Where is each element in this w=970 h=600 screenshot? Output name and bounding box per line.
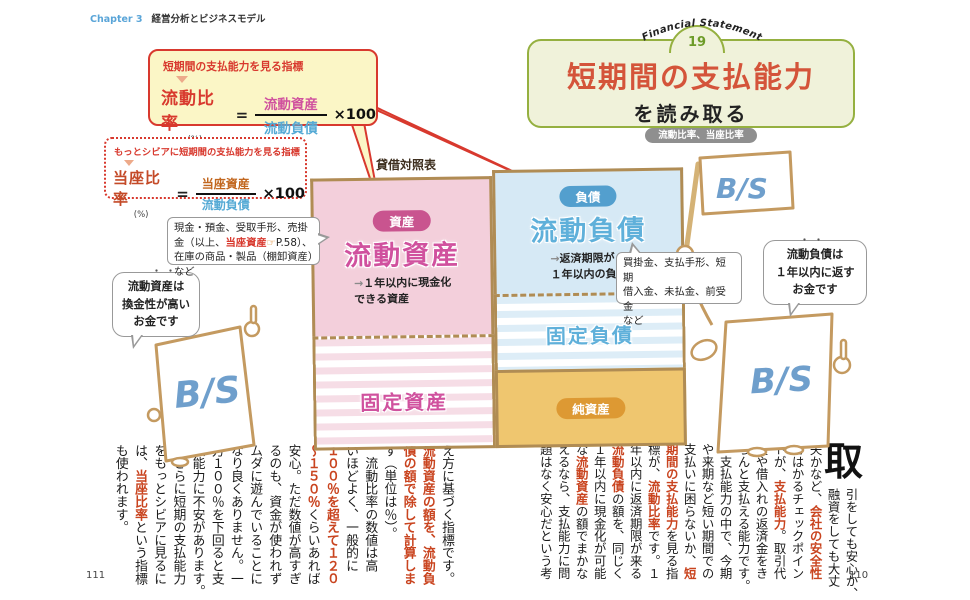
foot-icon [172,458,188,466]
current-ratio-name: 流動比率 [161,84,229,134]
fraction-denominator: 流動負債 [264,117,318,137]
pointing-hand-icon [834,340,850,373]
current-ratio-caption: 短期間の支払能力を見る指標 [163,58,303,74]
text-column: 標が、流動比率です。１ [644,443,662,600]
text-column: え方に基づく指標です。 [437,444,456,600]
note-segment: 当座資産 [225,237,266,249]
body-text-right-page: 取 引をしても安心か、融資をしても大丈夫かなど、会社の安全性をはかるチェックポイ… [534,443,860,600]
fraction-bar [255,114,326,116]
triangle-down-icon [124,160,134,166]
balance-sheet-title: 貸借対照表 [376,156,436,173]
text-column: トが、支払能力。取引代 [770,443,788,600]
fraction-numerator: 流動資産 [264,93,318,113]
times-100: ×100 [334,107,376,123]
quick-ratio-caption: もっとシビアに短期間の支払能力を見る指標 [114,144,300,158]
keywords-pill: 流動比率、当座比率 [645,128,757,143]
text-column: 流動比率の数値は高 [360,444,379,600]
left-hand-icon [148,409,160,421]
text-column: や来期など短い期間での [698,443,716,600]
emphasis-dots: ・・ [800,233,828,246]
note-segment: ☞ [267,237,276,249]
current-ratio-fraction: 流動資産 流動負債 [255,93,326,137]
current-assets-desc: →１年以内に現金化 できる資産 [354,275,452,308]
bs-label: B/S [749,359,814,402]
quick-ratio-fraction: 当座資産 流動負債 [196,175,256,213]
quick-ratio-name: 当座比率 [113,167,169,209]
flag-pole [686,164,698,252]
liabilities-badge: 負債 [559,185,616,207]
times-100: ×100 [263,186,305,202]
current-assets-label: 流動資産 [314,232,491,273]
page-number-left: 111 [86,570,105,581]
text-column: な流動資産の額でまかな [572,443,590,600]
text-column: ちんと支払える能力です。 [734,443,752,600]
text-column: 支払能力の中で、今期 [716,443,734,600]
text-column: 期間の支払能力を見る指 [662,443,680,600]
page-number-right: 110 [849,570,868,581]
net-assets-badge: 純資産 [556,397,626,419]
text-column: 金や借入れの返済金をき [752,443,770,600]
text-column: 安心。ただ数値が高すぎ [283,444,302,600]
triangle-down-icon [176,76,188,83]
text-column: 年以内に返済期限が来る [626,443,644,600]
fixed-assets-label: 固定資産 [316,385,492,416]
text-column: ～１５０％くらいあれば [303,444,322,600]
text-column: １年以内に現金化が可能 [590,443,608,600]
foot-icon [748,448,766,456]
equals-sign: = [236,106,249,124]
quick-ratio-formula: 当座比率 (%) = 当座資産 流動負債 ×100 [113,167,305,220]
open-hand-icon [688,336,719,363]
svg-text:Financial Statement: Financial Statement [640,18,764,44]
current-assets-cell: 資産 流動資産 →１年以内に現金化 できる資産 [310,176,494,337]
current-liabilities-note: 買掛金、支払手形、短期 借入金、未払金、前受金 など [616,252,742,304]
text-column: いほどよく、一般的に [341,444,360,600]
equals-sign: = [176,185,189,203]
text-column: をはかるチェックポイン [788,443,806,600]
financial-statement-label: Financial Statement [640,18,764,44]
current-ratio-formula: 流動比率 (%) = 流動資産 流動負債 ×100 [161,84,376,145]
text-column: 流動資産の額を、流動負 [418,444,437,600]
text-column: 債の額で除して計算しま [398,444,417,600]
current-ratio-formula-box: 短期間の支払能力を見る指標 流動比率 (%) = 流動資産 流動負債 ×100 [148,49,378,126]
pointing-hand-icon [245,306,259,336]
text-column: １００％を超えて１２０ [322,444,341,600]
bs-label: B/S [716,172,768,205]
book-spread: Chapter 3経営分析とビジネスモデル 短期間の支払能力 を読み取る 19 … [0,0,970,600]
emphasis-dots: ・・ [152,264,180,277]
bs-label: B/S [172,369,242,417]
text-column: す（単位は％）。 [379,444,398,600]
text-column: 夫かなど、会社の安全性 [806,443,824,600]
text-column: 題はなく安心だという考 [536,443,554,600]
fixed-assets-cell: 固定資産 [312,334,496,451]
fraction-denominator: 流動負債 [202,196,250,213]
chapter-number: Chapter 3 [90,14,143,25]
text-column: 流動負債の額を、同じく [608,443,626,600]
text-column: えるなら、支払能力に問 [554,443,572,600]
left-speech-bubble: 流動資産は 換金性が高い お金です [112,272,200,337]
chapter-header: Chapter 3経営分析とビジネスモデル [90,11,266,25]
financial-statement-arc: Financial Statement [630,5,774,45]
fraction-bar [196,193,256,195]
assets-badge: 資産 [373,210,430,232]
chapter-title: 経営分析とビジネスモデル [152,14,266,25]
fraction-numerator: 当座資産 [202,175,250,192]
quick-ratio-unit: (%) [134,210,149,220]
foot-icon [785,446,803,454]
text-column: 支払いに困らないか、短 [680,443,698,600]
right-speech-bubble: 流動負債は １年以内に返す お金です [763,240,867,305]
quick-ratio-formula-box: もっとシビアに短期間の支払能力を見る指標 当座比率 (%) = 当座資産 流動負… [104,137,307,199]
quick-assets-note: 現金・預金、受取手形、売掛金（以上、当座資産☞P.58）、在庫の商品・製品（棚卸… [167,217,320,265]
